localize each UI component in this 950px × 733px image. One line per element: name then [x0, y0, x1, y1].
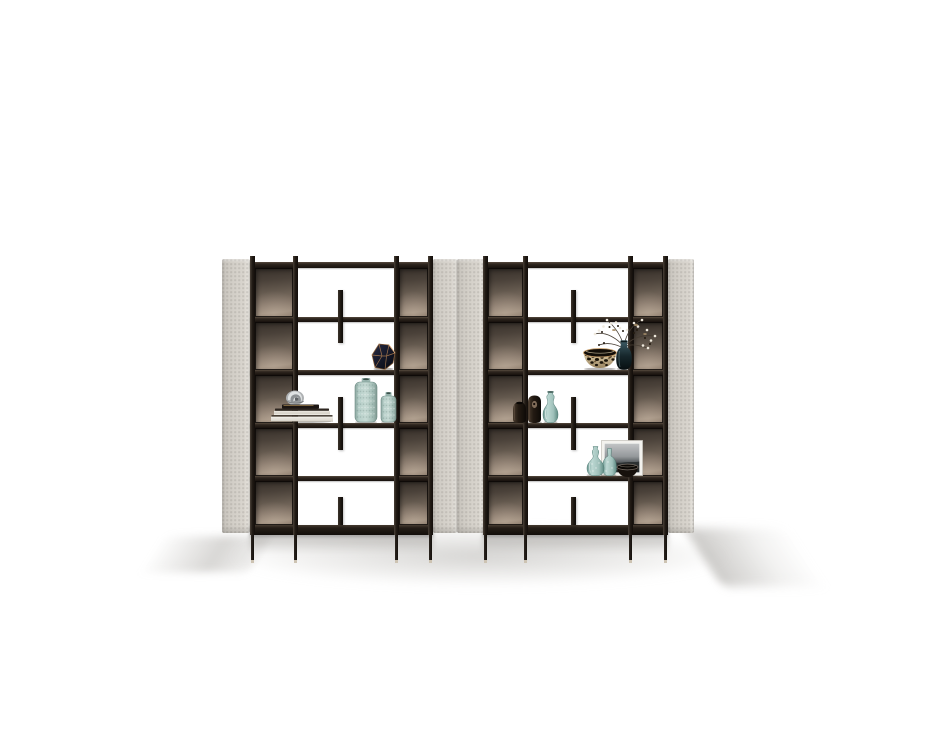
- bookshelf-left-leg: [294, 535, 297, 563]
- bookshelf-left-post: [250, 256, 255, 535]
- bookshelf-left-side-panel-right: [433, 259, 457, 533]
- bookshelf-right-leg-foot: [629, 560, 632, 563]
- bookshelf-right-side-panel-right: [668, 259, 694, 533]
- bookshelf-right-leg: [664, 535, 667, 563]
- bookshelf-left-divider-tab: [338, 397, 343, 450]
- bookshelf-left-bronze-back-panel: [399, 428, 428, 476]
- bookshelf-right-divider-tab: [571, 290, 576, 343]
- bookshelf-right-side-panel-left: [457, 259, 484, 533]
- bookshelf-left-leg: [395, 535, 398, 563]
- bookshelf-right-bronze-back-panel: [488, 322, 523, 370]
- bookshelf-left-leg: [251, 535, 254, 563]
- item-faceted-vase: [371, 343, 396, 370]
- bookshelf-left-bottom-slab: [250, 525, 433, 535]
- bookshelf-left-leg-foot: [395, 560, 398, 563]
- bookshelf-left-shelf: [250, 476, 433, 481]
- bookshelf-right-shelf: [483, 370, 668, 375]
- bookshelf-left-leg-foot: [251, 560, 254, 563]
- bookshelf-left-side-panel-left: [222, 259, 250, 533]
- bookshelf-left-bronze-back-panel: [255, 268, 293, 317]
- bookshelf-right-divider-tab: [571, 497, 576, 525]
- bookshelf-right-post: [663, 256, 668, 535]
- bookshelf-right-bronze-back-panel: [633, 268, 663, 317]
- bookshelf-right-divider-tab: [571, 397, 576, 450]
- bookshelf-right-top-rail: [483, 262, 668, 268]
- furniture-root: [0, 0, 950, 733]
- bookshelf-right-bronze-back-panel: [488, 481, 523, 525]
- bookshelf-left-leg-foot: [429, 560, 432, 563]
- bookshelf-left-bronze-back-panel: [399, 375, 428, 423]
- item-dark-vase-pair: [511, 395, 543, 423]
- bookshelf-left-bronze-back-panel: [255, 322, 293, 370]
- bookshelf-left-divider-tab: [338, 497, 343, 525]
- bookshelf-left-leg-foot: [294, 560, 297, 563]
- item-teal-pair: [585, 444, 618, 476]
- bookshelf-left-shelf: [250, 370, 433, 375]
- bookshelf-right-bronze-back-panel: [633, 375, 663, 423]
- bookshelf-left-floor-shadow: [250, 536, 433, 554]
- bookshelf-right-bronze-back-panel: [488, 268, 523, 317]
- bookshelf-right-post: [483, 256, 488, 535]
- product-scene: [0, 0, 950, 733]
- item-book-stack: [270, 388, 334, 423]
- bookshelf-left-bronze-back-panel: [399, 268, 428, 317]
- item-texture-vase-tall: [354, 378, 378, 423]
- bookshelf-right-leg-foot: [664, 560, 667, 563]
- item-dark-bowl: [616, 463, 639, 478]
- bookshelf-right-bottom-slab: [483, 525, 668, 535]
- bookshelf-right-leg: [629, 535, 632, 563]
- bookshelf-left-bronze-back-panel: [255, 428, 293, 476]
- bookshelf-right-bronze-back-panel: [633, 481, 663, 525]
- bookshelf-left-bronze-back-panel: [399, 322, 428, 370]
- bookshelf-left-post: [428, 256, 433, 535]
- bookshelf-right-leg: [524, 535, 527, 563]
- item-gourd-vase: [542, 391, 559, 423]
- item-branch-vase: [590, 317, 658, 370]
- item-texture-vase-short: [380, 392, 397, 423]
- bookshelf-right-leg-foot: [484, 560, 487, 563]
- bookshelf-left-bronze-back-panel: [255, 481, 293, 525]
- bookshelf-right-bronze-back-panel: [488, 428, 523, 476]
- bookshelf-left-bronze-back-panel: [399, 481, 428, 525]
- bookshelf-right-post: [628, 256, 633, 535]
- bookshelf-right-floor-shadow: [483, 536, 668, 554]
- bookshelf-left-leg: [429, 535, 432, 563]
- bookshelf-left-divider-tab: [338, 290, 343, 343]
- bookshelf-right-leg: [484, 535, 487, 563]
- bookshelf-right-shelf: [483, 476, 668, 481]
- bookshelf-right-leg-foot: [524, 560, 527, 563]
- bookshelf-left-top-rail: [250, 262, 433, 268]
